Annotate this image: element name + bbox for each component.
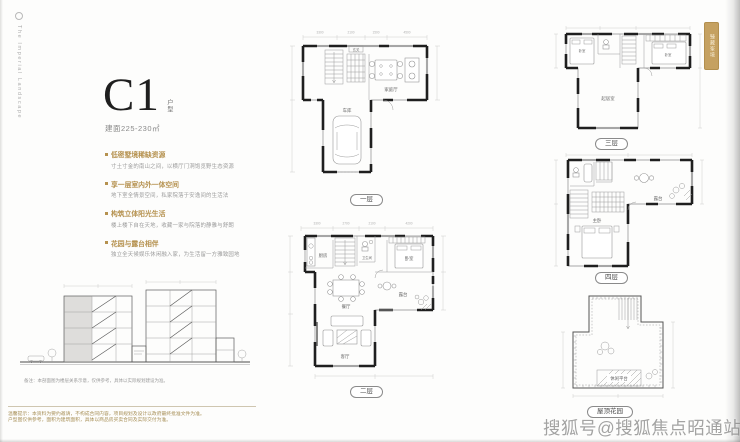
svg-text:1500: 1500 bbox=[372, 31, 379, 35]
floor-plan-2: 3300 2700 2100 4200 厨房 卫生间 卧室 bbox=[275, 218, 460, 384]
feature-body: 楼上楼下自在天地，收藏一家与院落的静雅与舒朗 bbox=[111, 221, 263, 229]
left-building bbox=[64, 284, 132, 362]
bath-fixtures bbox=[573, 164, 592, 182]
closet-icon bbox=[596, 162, 612, 180]
brand-logo-icon bbox=[15, 12, 23, 20]
tree-icon bbox=[48, 349, 56, 362]
room-label: 家庭厅 bbox=[384, 86, 398, 93]
feature-body: 地下室全情景空间，私家院落于安逸间的生活法 bbox=[111, 191, 263, 199]
floor-label-capsule: 二层 bbox=[350, 386, 383, 398]
room-label: 车库 bbox=[343, 107, 352, 114]
feature-list: 低密墅境稀缺资源 寸土寸金的南山之间，以横厅门洞饱览野生态资源 享一层室内外一体… bbox=[105, 149, 263, 267]
svg-text:4500: 4500 bbox=[403, 31, 410, 35]
skylight-grid bbox=[592, 192, 624, 212]
room-label: 卧室 bbox=[665, 52, 672, 57]
section-caption: 备注：本剖面图为楼层关系示意，仅供参考，具体以实际规划建设为准。 bbox=[24, 378, 244, 384]
room-label: 卧室 bbox=[405, 255, 414, 262]
page-edge-left bbox=[0, 0, 3, 442]
bullet-dot-icon bbox=[105, 241, 108, 244]
dimension-lines bbox=[561, 322, 675, 398]
page-edge-right bbox=[725, 0, 740, 442]
room-label: 露台 bbox=[399, 291, 408, 298]
feature-item: 享一层室内外一体空间 地下室全情景空间，私家院落于安逸间的生活法 bbox=[105, 179, 263, 200]
svg-text:3300: 3300 bbox=[316, 31, 323, 35]
room-label: 卫生间 bbox=[362, 255, 373, 260]
stairs-icon bbox=[619, 298, 637, 329]
room-label: 餐厅 bbox=[342, 303, 351, 310]
unit-name: C1 bbox=[103, 72, 160, 119]
feature-title: 构筑立体阳光生活 bbox=[105, 208, 263, 218]
sofa-set-icon bbox=[317, 316, 371, 346]
svg-text:4200: 4200 bbox=[405, 222, 412, 226]
stairs-icon bbox=[570, 190, 588, 218]
divider-line bbox=[8, 406, 256, 407]
dining-table-icon bbox=[328, 275, 365, 302]
dining-table-icon bbox=[369, 60, 402, 80]
feature-item: 构筑立体阳光生活 楼上楼下自在天地，收藏一家与院落的静雅与舒朗 bbox=[105, 208, 263, 229]
stairs-icon bbox=[325, 50, 343, 84]
svg-text:2700: 2700 bbox=[342, 222, 349, 226]
brand-block: The Imperial Landscape bbox=[12, 12, 26, 145]
bed-icon bbox=[575, 226, 619, 258]
toilet-icon bbox=[603, 40, 609, 49]
room-label: 起居室 bbox=[601, 95, 615, 102]
stairs-icon bbox=[622, 36, 636, 64]
room-label: 厨房 bbox=[319, 252, 328, 259]
bed-icon bbox=[646, 35, 686, 64]
roof-garden-plan: 休闲平台 bbox=[545, 288, 710, 403]
bullet-dot-icon bbox=[105, 153, 108, 156]
feature-body: 独立全天候娱乐休闲融入家，为生活留一方雅致园地 bbox=[111, 250, 263, 258]
floor-label-capsule: 一层 bbox=[350, 194, 383, 206]
stairs-icon bbox=[335, 238, 355, 266]
toilet-icon bbox=[362, 240, 373, 251]
feature-item: 花园与露台相伴 独立全天候娱乐休闲融入家，为生活留一方雅致园地 bbox=[105, 238, 263, 259]
bed-icon bbox=[389, 237, 425, 268]
right-building bbox=[146, 280, 234, 362]
feature-title: 花园与露台相伴 bbox=[105, 238, 263, 248]
unit-name-suffix: 户型 bbox=[165, 99, 174, 113]
floor-plan-1: 3300 2100 1500 4500 玄关 家庭厅 车库 bbox=[275, 24, 460, 194]
room-label: 露台 bbox=[654, 195, 663, 202]
bullet-dot-icon bbox=[105, 212, 108, 215]
svg-text:2100: 2100 bbox=[347, 31, 354, 35]
floor-label-capsule: 三层 bbox=[595, 138, 628, 150]
floor-label-capsule: 四层 bbox=[595, 272, 628, 284]
room-label: 休闲平台 bbox=[610, 375, 628, 382]
feature-item: 低密墅境稀缺资源 寸土寸金的南山之间，以横厅门洞饱览野生态资源 bbox=[105, 149, 263, 170]
building-section-diagram bbox=[20, 268, 250, 376]
kitchen-counter bbox=[307, 238, 315, 266]
car-icon bbox=[333, 116, 361, 164]
unit-area: 建面225-230㎡ bbox=[105, 123, 160, 134]
bullet-dot-icon bbox=[105, 182, 108, 185]
terrace-furniture bbox=[634, 174, 692, 201]
feature-body: 寸土寸金的南山之间，以横厅门洞饱览野生态资源 bbox=[111, 162, 263, 170]
feature-title: 享一层室内外一体空间 bbox=[105, 179, 263, 189]
svg-text:3300: 3300 bbox=[313, 222, 320, 226]
svg-text:2100: 2100 bbox=[368, 222, 375, 226]
brochure-page: { "brand": { "logo_text": "The Imperial … bbox=[0, 0, 740, 442]
feature-title: 低密墅境稀缺资源 bbox=[105, 149, 263, 159]
room-label: 玄关 bbox=[353, 47, 360, 52]
brand-vertical-text: The Imperial Landscape bbox=[16, 25, 22, 145]
disclaimer-line: 户型图仅供参考，面积为建筑面积，具体以商品房买卖合同及实际交付为准。 bbox=[8, 416, 260, 423]
floor-plan-4: 主卧 露台 bbox=[540, 150, 715, 272]
watermark: 搜狐号@搜狐焦点昭通站 bbox=[543, 415, 740, 440]
room-label: 客厅 bbox=[341, 353, 350, 360]
middle-block bbox=[132, 346, 146, 362]
tree-icon bbox=[238, 350, 246, 362]
cabinet-grid bbox=[347, 54, 365, 82]
room-label: 卧室 bbox=[579, 48, 586, 53]
room-label: 主卧 bbox=[593, 217, 602, 224]
side-table-icon bbox=[405, 58, 419, 82]
floor-plan-3: 卧室 卧室 起居室 bbox=[540, 20, 715, 136]
unit-title: C1 户型 bbox=[103, 72, 183, 119]
